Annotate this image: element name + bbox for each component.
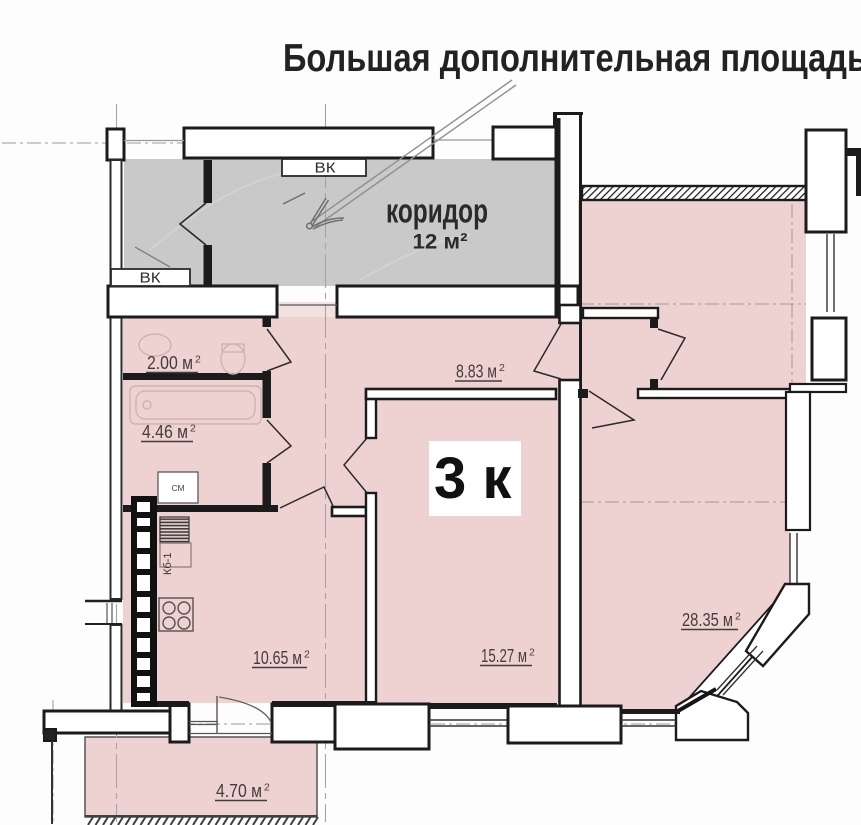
- svg-text:ВК: ВК: [140, 270, 161, 287]
- svg-text:4.70 м: 4.70 м: [216, 781, 262, 801]
- svg-text:2.00 м: 2.00 м: [147, 353, 193, 373]
- svg-text:Большая дополнительная площадь: Большая дополнительная площадь: [283, 37, 861, 80]
- svg-text:2: 2: [304, 649, 310, 661]
- svg-text:СМ: СМ: [171, 483, 184, 493]
- svg-text:коридор: коридор: [386, 193, 488, 231]
- svg-text:10.65 м: 10.65 м: [253, 648, 302, 668]
- svg-text:Кб-1: Кб-1: [162, 553, 174, 576]
- svg-text:8.83 м: 8.83 м: [456, 362, 497, 382]
- svg-text:28.35 м: 28.35 м: [682, 610, 733, 630]
- svg-text:2: 2: [195, 354, 201, 366]
- svg-text:ВК: ВК: [315, 160, 336, 177]
- svg-text:2: 2: [190, 423, 196, 435]
- svg-text:2: 2: [499, 362, 505, 374]
- svg-text:2: 2: [735, 611, 741, 623]
- svg-text:15.27 м: 15.27 м: [481, 646, 527, 666]
- svg-text:12 м²: 12 м²: [413, 230, 468, 254]
- svg-text:2: 2: [264, 782, 270, 794]
- svg-text:3 к: 3 к: [434, 446, 512, 511]
- svg-text:2: 2: [529, 647, 535, 659]
- svg-text:4.46 м: 4.46 м: [142, 422, 188, 442]
